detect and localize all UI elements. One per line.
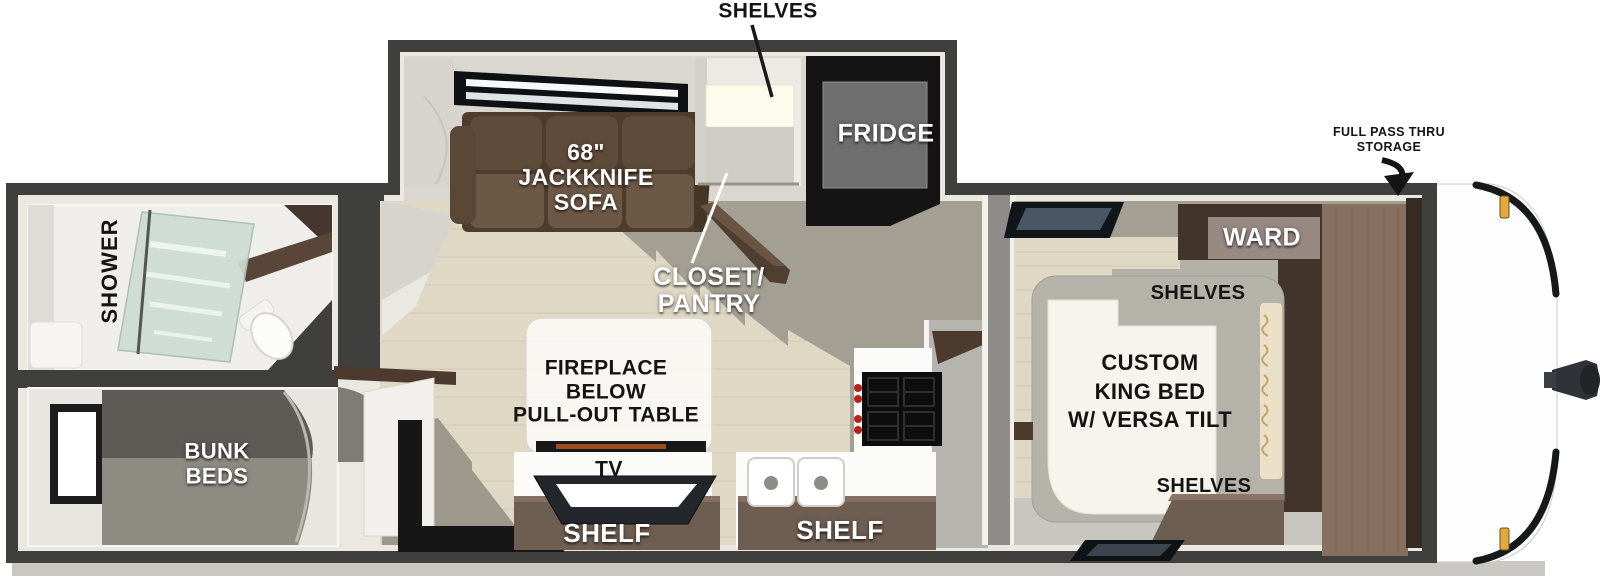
sofa-seat-cushion xyxy=(470,174,544,228)
closet-shelf xyxy=(706,85,794,127)
shelf-right-box xyxy=(738,502,936,550)
living-area xyxy=(334,56,988,552)
bedroom xyxy=(1004,198,1422,561)
pull-out-table xyxy=(526,318,712,454)
bedside-cabinet xyxy=(1014,422,1033,440)
bunk-upper xyxy=(102,390,313,458)
fireplace-flame xyxy=(556,444,666,449)
fridge-unit xyxy=(806,56,940,226)
floorplan-drawing xyxy=(0,0,1600,580)
rv-floorplan: SHELVES FULL PASS THRU STORAGE FRIDGE 68… xyxy=(0,0,1600,580)
sofa-seat-cushion xyxy=(548,174,622,228)
hitch-ball xyxy=(1580,365,1600,395)
bath-counter xyxy=(30,322,82,368)
sofa-back-cushion xyxy=(546,116,618,170)
stove xyxy=(862,372,942,446)
king-bed-mattress xyxy=(1048,300,1216,514)
sink-drain xyxy=(764,476,778,490)
bedroom-wall xyxy=(982,195,1016,545)
bedroom-window xyxy=(1016,208,1112,230)
sink-drain xyxy=(814,476,828,490)
foot-shelf-top xyxy=(1168,494,1284,501)
sofa-seat-cushion xyxy=(626,174,694,228)
pass-thru-storage-panel xyxy=(1322,204,1408,556)
jackknife-sofa xyxy=(450,112,714,232)
sofa-back-cushion xyxy=(622,116,694,170)
front-wall-dark xyxy=(1406,198,1422,548)
foot-shelf-box xyxy=(1150,500,1284,545)
front-cap-body xyxy=(1428,184,1557,562)
bedroom-wall-core xyxy=(988,195,1010,545)
closet-wall-shade xyxy=(695,58,707,185)
front-cap xyxy=(1428,184,1600,562)
bunk-window xyxy=(58,412,96,496)
tv-screen xyxy=(556,484,697,507)
sofa-back-cushion xyxy=(470,116,542,170)
closet-lower xyxy=(706,127,794,185)
marker-light-bottom xyxy=(1500,528,1509,550)
floor-vent xyxy=(1086,544,1172,556)
ground-shadow xyxy=(12,561,1545,576)
fridge-door xyxy=(823,82,927,188)
bathroom-bunk-wall xyxy=(18,370,338,388)
marker-light-top xyxy=(1500,196,1509,218)
sofa-armrest xyxy=(450,126,476,224)
rear-bathroom xyxy=(28,205,332,370)
bunk-room xyxy=(28,388,338,546)
ward-panel xyxy=(1208,217,1320,259)
rear-living-wall xyxy=(338,195,384,372)
hitch-arm xyxy=(1544,372,1556,388)
